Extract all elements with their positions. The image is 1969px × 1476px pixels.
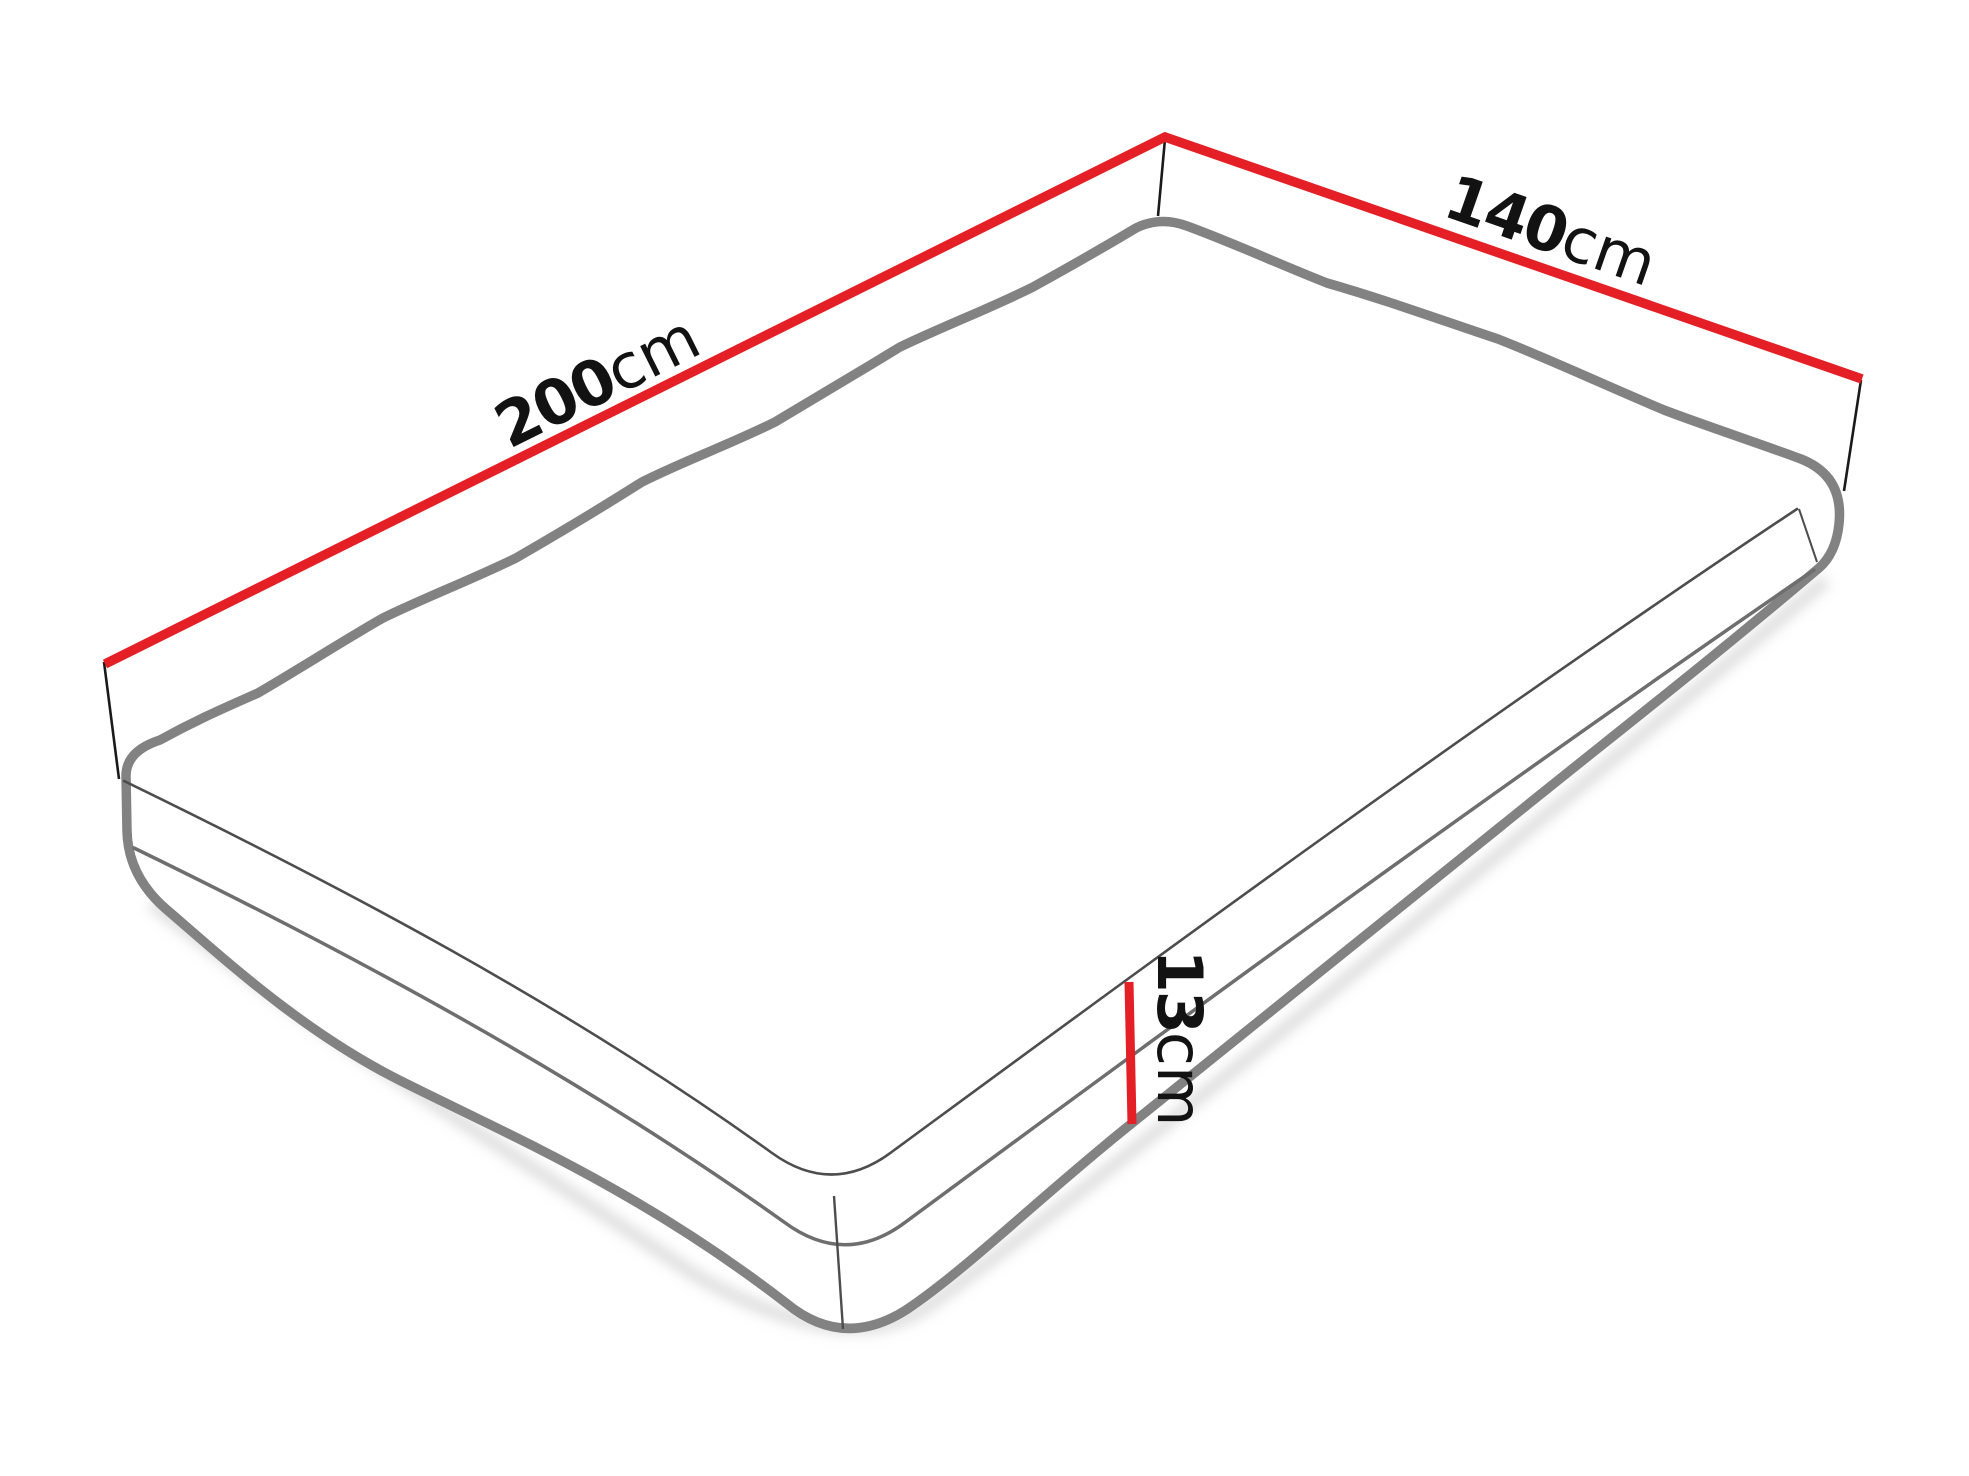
- svg-text:13cm: 13cm: [1144, 950, 1217, 1127]
- height-value: 13: [1144, 950, 1217, 1032]
- height-dimension-line: [1129, 982, 1132, 1124]
- diagram-canvas: 200cm 140cm 13cm: [0, 0, 1969, 1476]
- height-unit: cm: [1144, 1032, 1217, 1126]
- height-dimension-label: 13cm: [1144, 950, 1217, 1127]
- mattress-dimensions-diagram: 200cm 140cm 13cm: [0, 0, 1969, 1476]
